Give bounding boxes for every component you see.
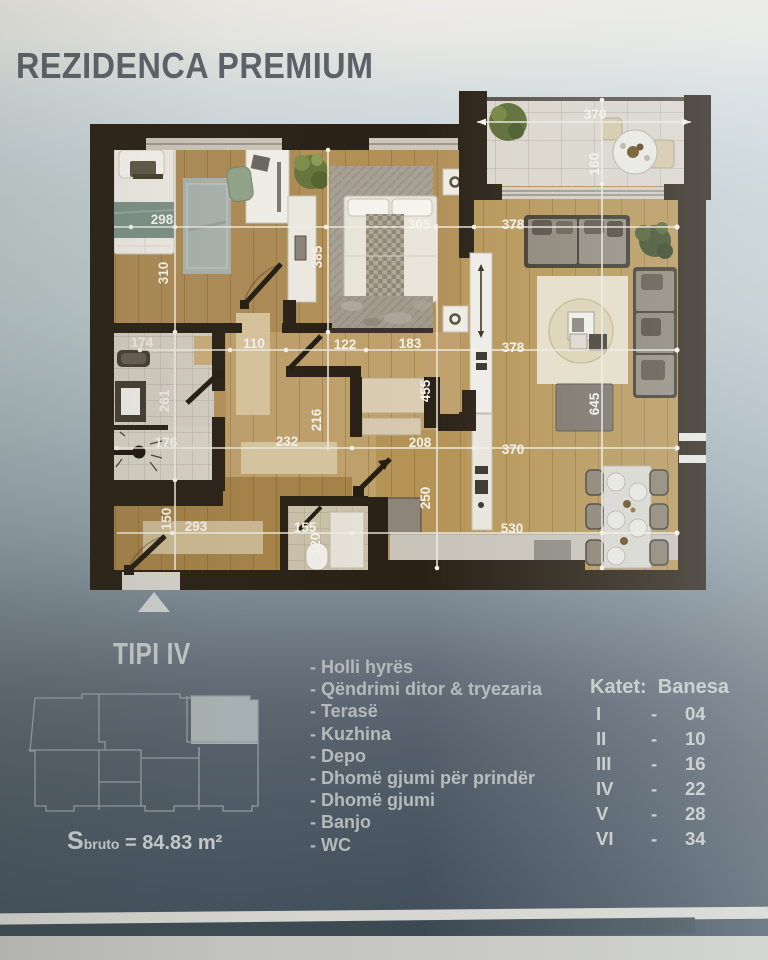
svg-text:261: 261 bbox=[157, 389, 172, 412]
svg-text:645: 645 bbox=[587, 392, 602, 415]
svg-text:530: 530 bbox=[501, 521, 524, 536]
svg-text:455: 455 bbox=[418, 379, 433, 402]
svg-text:250: 250 bbox=[418, 487, 433, 510]
svg-text:310: 310 bbox=[156, 262, 171, 285]
svg-text:160: 160 bbox=[587, 153, 602, 176]
svg-text:150: 150 bbox=[159, 508, 174, 531]
svg-text:174: 174 bbox=[131, 335, 154, 350]
svg-text:110: 110 bbox=[243, 336, 265, 351]
svg-text:385: 385 bbox=[310, 245, 325, 268]
svg-text:378: 378 bbox=[502, 217, 525, 232]
svg-text:370: 370 bbox=[584, 107, 607, 122]
svg-text:216: 216 bbox=[309, 408, 324, 431]
svg-text:305: 305 bbox=[408, 217, 431, 232]
svg-text:298: 298 bbox=[151, 212, 174, 227]
svg-text:370: 370 bbox=[502, 442, 525, 457]
svg-text:183: 183 bbox=[399, 336, 422, 351]
svg-text:293: 293 bbox=[185, 519, 208, 534]
svg-text:378: 378 bbox=[502, 340, 525, 355]
svg-text:176: 176 bbox=[155, 435, 178, 450]
svg-text:122: 122 bbox=[334, 337, 357, 352]
svg-text:120: 120 bbox=[308, 533, 323, 556]
svg-text:232: 232 bbox=[276, 434, 299, 449]
svg-text:208: 208 bbox=[409, 435, 432, 450]
